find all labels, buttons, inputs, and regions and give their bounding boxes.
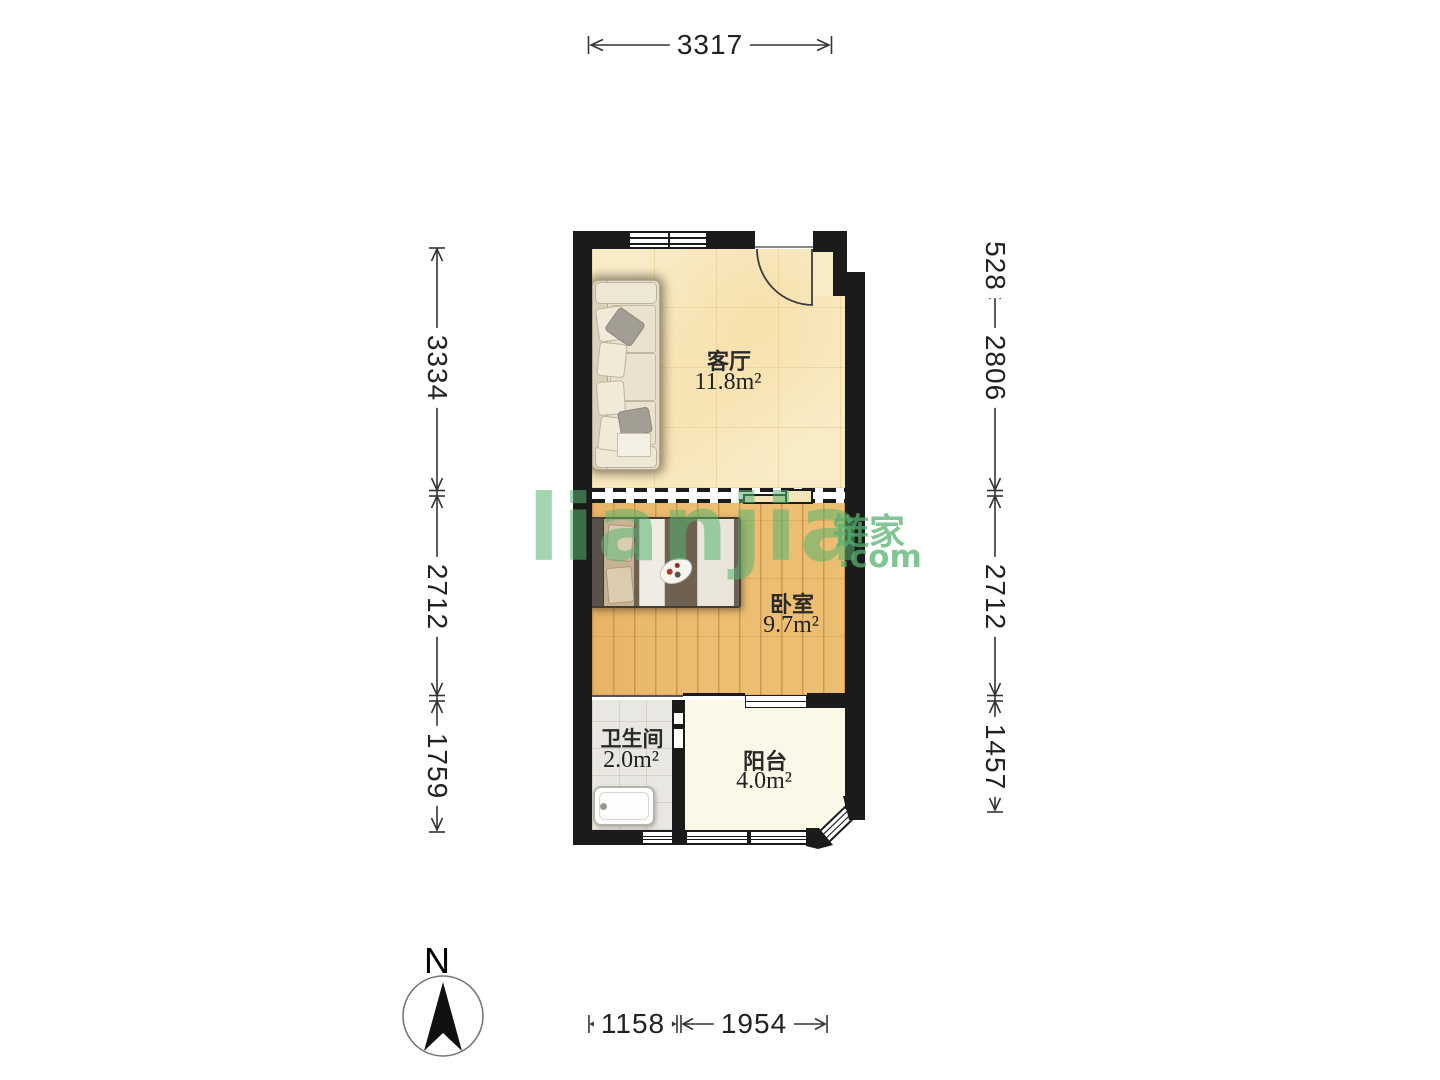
dim-bottom-1: 1158 xyxy=(594,1008,672,1040)
dim-right-1: 528 xyxy=(979,234,1011,298)
bed-pillow xyxy=(605,566,634,604)
dim-right-3: 2712 xyxy=(979,557,1011,637)
sofa-ottoman xyxy=(617,433,651,457)
balcony-door-window xyxy=(745,695,807,708)
balcony-top-edge xyxy=(683,693,745,696)
threshold-step xyxy=(785,489,813,504)
wall-left xyxy=(573,231,592,845)
floorplan-canvas: 客厅 11.8m² 卧室 9.7m² 卫生间 2.0m² 阳台 4.0m² 33… xyxy=(0,0,1440,1080)
wall-bottom-left xyxy=(573,830,643,845)
wall-bathroom-balcony xyxy=(672,700,685,832)
living-room-window xyxy=(628,231,708,249)
bed xyxy=(589,517,741,608)
bed-pillow-zone xyxy=(604,519,634,606)
wall-bedroom-bottom-right xyxy=(807,693,865,708)
bathtub-faucet xyxy=(600,803,607,810)
bathroom-top-edge xyxy=(592,695,683,697)
tray-item xyxy=(674,571,682,579)
window-muntin xyxy=(643,839,820,840)
window-mullion xyxy=(672,832,687,843)
living-room-area: 11.8m² xyxy=(695,369,762,396)
dim-top-width: 3317 xyxy=(670,29,750,61)
compass-circle xyxy=(403,976,483,1056)
wall-step-c xyxy=(833,272,865,296)
wall-step-b xyxy=(833,252,847,272)
bathroom-door-slot xyxy=(674,729,683,748)
bedroom-area: 9.7m² xyxy=(763,612,819,639)
compass-needle xyxy=(424,982,462,1051)
bathroom-area: 2.0m² xyxy=(603,747,659,774)
wall-right xyxy=(845,296,865,816)
dim-left-3: 1759 xyxy=(421,726,453,806)
bed-headboard xyxy=(591,519,605,606)
wall-step-a xyxy=(813,231,847,252)
window-muntin xyxy=(746,701,806,702)
window-mullion xyxy=(747,832,751,843)
dim-left-2: 2712 xyxy=(421,557,453,637)
tray-item xyxy=(666,568,674,576)
dim-left-1: 3334 xyxy=(421,328,453,408)
compass xyxy=(403,976,483,1056)
bathroom-door-slot xyxy=(674,713,683,724)
threshold-step xyxy=(743,494,787,504)
bed-sheet xyxy=(639,519,665,606)
dim-right-4: 1457 xyxy=(979,717,1011,797)
entry-opening-line xyxy=(755,246,813,248)
window-muntin xyxy=(643,836,820,837)
sofa xyxy=(592,280,660,470)
bed-blanket xyxy=(697,519,734,606)
compass-north-label: N xyxy=(424,940,450,982)
balcony-area: 4.0m² xyxy=(736,768,792,795)
wall-top-b xyxy=(708,231,755,249)
balcony-window-band xyxy=(643,830,820,845)
tray-item xyxy=(674,562,681,569)
sofa-armrest-top xyxy=(595,282,657,304)
dim-bottom-2: 1954 xyxy=(714,1008,794,1040)
sofa-back-cushion xyxy=(596,342,627,379)
bed-pillow xyxy=(606,524,634,562)
window-mullion xyxy=(668,233,670,247)
wall-top-a xyxy=(573,231,628,249)
dim-right-2: 2806 xyxy=(979,328,1011,408)
bathtub xyxy=(593,786,655,826)
